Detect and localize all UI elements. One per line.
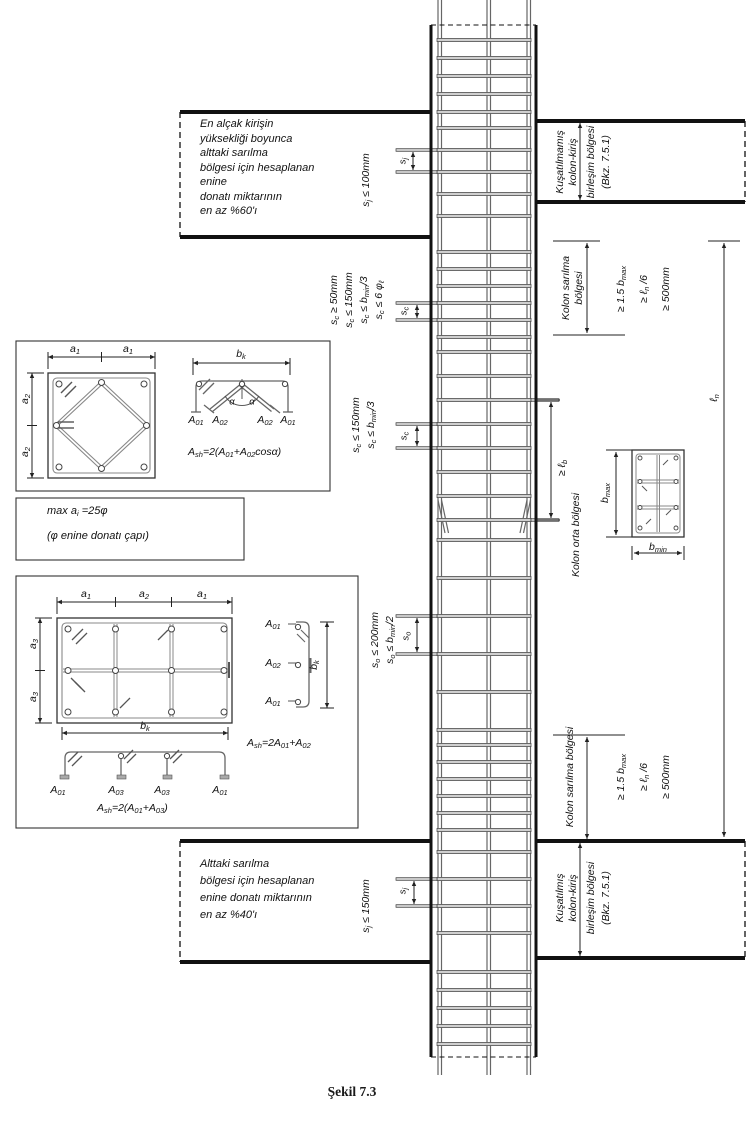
- panel3-bottom-hoop: [60, 727, 229, 779]
- label-joint-bottom-3: birleşim bölgesi: [586, 862, 597, 934]
- column-rebars: [438, 0, 531, 1075]
- label-joint-top-4: (Bkz. 7.5.1): [601, 135, 612, 189]
- label-so-le-200: so ≤ 200mm: [370, 612, 381, 668]
- p3-formula-strip: Ash=2A01+A02: [247, 738, 311, 749]
- p3-A01-strip-bottom: A01: [265, 696, 280, 707]
- label-sc-marker-top: sc: [399, 307, 409, 316]
- p1-alpha-left: α: [229, 397, 234, 407]
- p3-A01-strip-top: A01: [265, 619, 280, 630]
- label-sc-le-150b: sc ≤ 150mm: [351, 397, 362, 453]
- label-sc-le-bmin3a: sc ≤ bmin/3: [359, 276, 370, 323]
- label-sc-marker-mid: sc: [399, 432, 409, 441]
- label-ge-15bmax-bottom: ≥ 1.5 bmax: [616, 754, 627, 800]
- panel3-rect-section: [35, 597, 232, 723]
- detail-panel-borders: [16, 341, 358, 828]
- label-joint-bottom-4: (Bkz. 7.5.1): [601, 871, 612, 925]
- note-top-left: En alçak kirişin yüksekliği boyunca altt…: [200, 117, 314, 219]
- p3-A01-hoop-2: A01: [212, 785, 227, 796]
- label-sarilma-top-1: Kolon sarılma: [561, 256, 572, 320]
- p3-A03-hoop-1: A03: [108, 785, 123, 796]
- p2-phi-note: (φ enine donatı çapı): [47, 531, 149, 542]
- figure-page: { "caption": "Şekil 7.3", "notes": { "to…: [0, 0, 751, 1123]
- p3-bk-bottom: bk: [140, 721, 150, 732]
- p1-bk: bk: [236, 349, 246, 360]
- p3-a2: a2: [139, 589, 149, 600]
- label-sc-ge-50: sc ≥ 50mm: [329, 275, 340, 325]
- label-joint-bottom-2: kolon-kiriş: [568, 874, 579, 921]
- label-joint-top-1: Kuşatılmamış: [555, 130, 566, 194]
- p3-a3-top: a3: [28, 639, 39, 649]
- label-sj-bottom: sj: [398, 888, 408, 894]
- label-ge-lb: ≥ ℓb: [557, 460, 568, 476]
- p2-max-ai: max ai =25φ: [47, 506, 108, 517]
- panel1-square-section: [27, 352, 155, 478]
- label-bmax: bmax: [600, 483, 611, 503]
- label-sc-le-6phi: sc ≤ 6 φℓ: [374, 281, 385, 320]
- p3-formula-hoop: Ash=2(A01+A03): [97, 803, 168, 814]
- label-ge-ln6-top: ≥ ℓn /6: [639, 275, 650, 303]
- p1-A01-right: A01: [280, 415, 295, 426]
- label-joint-bottom-1: Kuşatılmış: [555, 873, 566, 922]
- label-joint-top-3: birleşim bölgesi: [586, 126, 597, 198]
- label-ge-500-top: ≥ 500mm: [661, 267, 672, 311]
- p3-bk-strip: bk: [309, 660, 320, 670]
- p3-A02-strip: A02: [265, 658, 280, 669]
- note-bottom-left: Alttaki sarılma bölgesi için hesaplanan …: [200, 856, 314, 924]
- column-section-small: [632, 450, 684, 537]
- figure-caption: Şekil 7.3: [328, 1084, 377, 1100]
- p3-A01-hoop-1: A01: [50, 785, 65, 796]
- label-sj-max-100: sj ≤ 100mm: [361, 153, 372, 207]
- p3-a1-left: a1: [81, 589, 91, 600]
- p1-A02-right: A02: [257, 415, 272, 426]
- p1-alpha-right: α: [249, 397, 254, 407]
- label-sj-max-150: sj ≤ 150mm: [361, 879, 372, 933]
- p1-a1-left: a1: [70, 344, 80, 355]
- column-ties: [437, 38, 531, 1045]
- label-ge-500-bottom: ≥ 500mm: [661, 755, 672, 799]
- p1-A01-left: A01: [188, 415, 203, 426]
- p1-a2-top: a2: [20, 394, 31, 404]
- label-kolon-orta: Kolon orta bölgesi: [571, 493, 582, 577]
- label-sarilma-top-2: bölgesi: [574, 271, 585, 304]
- label-so-marker: so: [401, 632, 411, 641]
- label-sj-top: sj: [398, 158, 408, 164]
- p3-a3-bottom: a3: [28, 692, 39, 702]
- label-joint-top-2: kolon-kiriş: [568, 138, 579, 185]
- p3-A03-hoop-2: A03: [154, 785, 169, 796]
- p3-a1-right: a1: [197, 589, 207, 600]
- panel1-diagonal-hoop: [191, 358, 293, 413]
- p1-a2-bottom: a2: [20, 447, 31, 457]
- p1-a1-right: a1: [123, 344, 133, 355]
- structural-diagram: [0, 0, 751, 1123]
- label-ln: ℓn: [709, 394, 720, 402]
- p1-formula: Ash=2(A01+A02cosα): [188, 447, 281, 458]
- label-ge-ln6-bottom: ≥ ℓn /6: [639, 763, 650, 791]
- label-sc-le-150a: sc ≤ 150mm: [344, 272, 355, 328]
- p1-A02-left: A02: [212, 415, 227, 426]
- label-sc-le-bmin3b: sc ≤ bmin/3: [366, 401, 377, 448]
- label-sarilma-bottom: Kolon sarılma bölgesi: [565, 727, 576, 827]
- label-ge-15bmax-top: ≥ 1.5 bmax: [616, 266, 627, 312]
- label-bmin: bmin: [649, 542, 667, 553]
- label-so-le-bmin2: so ≤ bmin/2: [385, 616, 396, 664]
